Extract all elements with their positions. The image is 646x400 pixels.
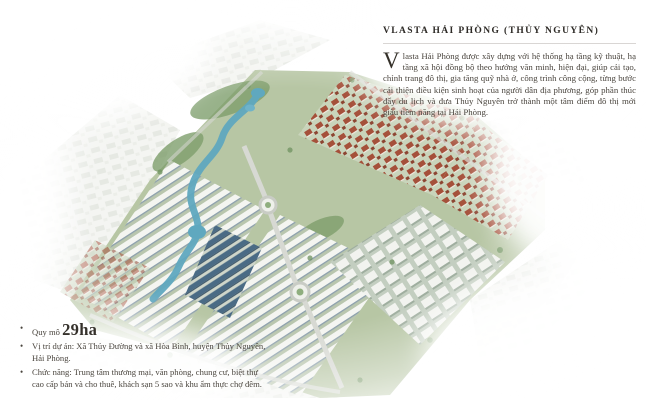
- fact-location: • Vị trí dự án: Xã Thủy Đường và xã Hòa …: [20, 341, 270, 364]
- bullet-icon: •: [20, 341, 32, 364]
- key-facts-list: • Quy mô 29ha • Vị trí dự án: Xã Thủy Đư…: [20, 323, 270, 393]
- project-title: VLASTA HẢI PHÒNG (THỦY NGUYÊN): [383, 26, 636, 44]
- scale-label: Quy mô: [32, 327, 60, 337]
- fact-scale: • Quy mô 29ha: [20, 323, 270, 338]
- dropcap-letter: V: [383, 51, 403, 70]
- project-description: Vlasta Hải Phòng được xây dựng với hệ th…: [383, 51, 636, 118]
- fact-location-text: Vị trí dự án: Xã Thủy Đường và xã Hòa Bì…: [32, 341, 270, 364]
- fact-function-text: Chức năng: Trung tâm thương mại, văn phò…: [32, 367, 270, 390]
- brochure-page: VLASTA HẢI PHÒNG (THỦY NGUYÊN) Vlasta Hả…: [0, 0, 646, 400]
- fact-scale-body: Quy mô 29ha: [32, 323, 270, 338]
- bullet-icon: •: [20, 367, 32, 390]
- scale-value: 29ha: [62, 320, 97, 339]
- description-text: lasta Hải Phòng được xây dựng với hệ thố…: [383, 51, 636, 117]
- bullet-icon: •: [20, 323, 32, 338]
- fact-function: • Chức năng: Trung tâm thương mại, văn p…: [20, 367, 270, 390]
- project-info-panel: VLASTA HẢI PHÒNG (THỦY NGUYÊN) Vlasta Hả…: [383, 26, 636, 127]
